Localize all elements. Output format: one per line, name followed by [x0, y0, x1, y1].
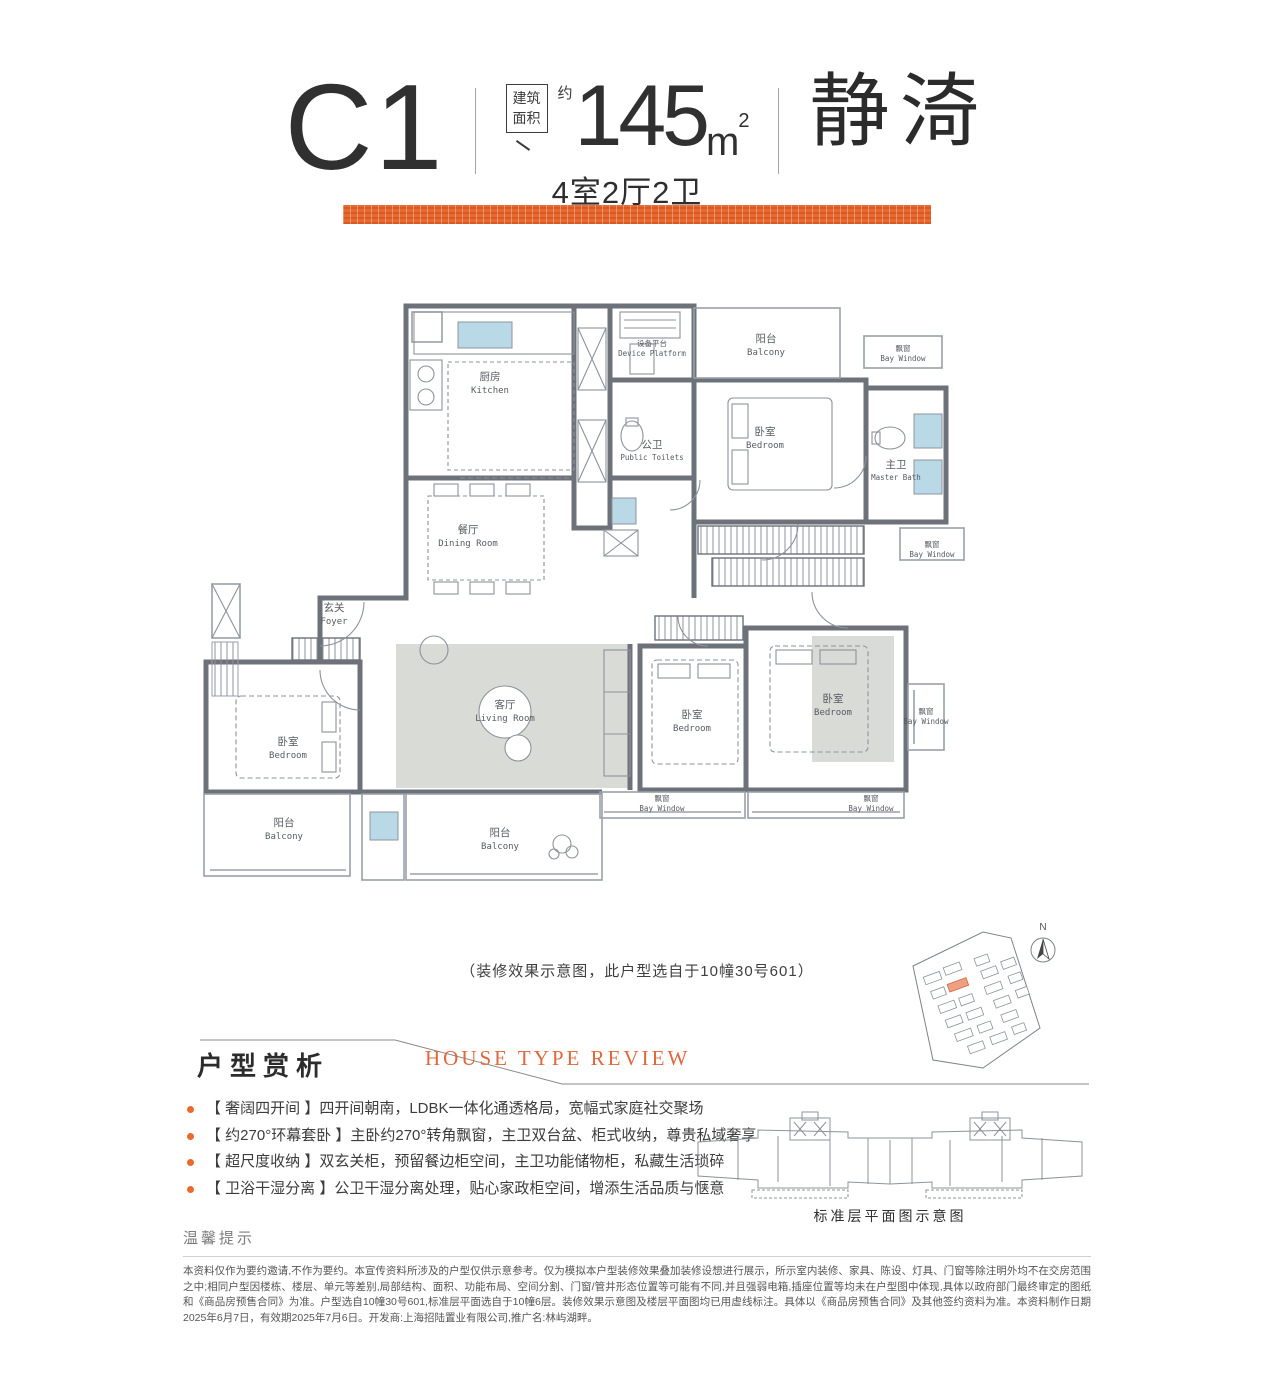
room-label: Bedroom — [814, 708, 852, 718]
area-approx: 约 — [558, 82, 573, 103]
room-label: Bay Window — [639, 804, 685, 813]
area-label-box: 建筑 面积 — [506, 84, 548, 133]
room-label: 飘窗 — [925, 539, 940, 549]
room-label: Bay Window — [880, 354, 926, 363]
balcony-rails-layer — [204, 308, 964, 880]
room-label: Device Platform — [618, 349, 686, 358]
room-label: Bay Window — [848, 804, 894, 813]
room-label: 阳台 — [274, 816, 295, 829]
room-label: 客厅 — [495, 698, 516, 711]
north-compass-icon: N — [1031, 922, 1055, 962]
room-label: 玄关 — [324, 601, 345, 614]
header-divider-left — [475, 88, 476, 174]
room-label: 卧室 — [278, 735, 299, 748]
room-label: Foyer — [320, 617, 348, 627]
area-unit: m2 — [706, 110, 748, 165]
room-label: 餐厅 — [458, 523, 479, 536]
floor-plan-drawing: 厨房 Kitchen 设备平台 Device Platform 公卫 Publi… — [200, 298, 980, 898]
room-label: 厨房 — [480, 370, 501, 383]
room-label: Bedroom — [673, 724, 711, 734]
area-label-line2: 面积 — [507, 108, 547, 128]
room-label: Balcony — [265, 832, 304, 842]
brochure-page: C1 建筑 面积 约 145 m2 4室2厅2卫 静渏 — [0, 0, 1274, 1400]
room-label: Public Toilets — [620, 453, 683, 462]
room-label: 卧室 — [823, 692, 844, 705]
header-divider-right — [778, 88, 779, 174]
room-label: Balcony — [747, 348, 786, 358]
room-label: 主卫 — [886, 459, 907, 471]
review-title-cn: 户型赏析 — [197, 1046, 329, 1083]
room-label: Living Room — [475, 714, 535, 724]
room-label: 飘窗 — [896, 343, 911, 353]
room-label: Master Bath — [871, 473, 921, 482]
room-label: 飘窗 — [655, 793, 670, 803]
room-label: Balcony — [481, 842, 520, 852]
notice-title: 温馨提示 — [183, 1227, 255, 1248]
header: C1 建筑 面积 约 145 m2 4室2厅2卫 静渏 — [0, 66, 1274, 212]
room-label: 设备平台 — [637, 338, 667, 348]
review-title-en: HOUSE TYPE REVIEW — [425, 1046, 690, 1071]
notice-divider — [183, 1256, 1091, 1257]
room-label: Bay Window — [909, 550, 955, 559]
north-label: N — [1039, 922, 1046, 933]
orange-pattern-strip — [343, 205, 931, 224]
area-label-line1: 建筑 — [507, 88, 547, 108]
standard-floor-drawing — [690, 1110, 1090, 1206]
area-row: 建筑 面积 约 145 m2 — [506, 76, 749, 165]
area-superscript: 2 — [738, 110, 748, 132]
room-label: 公卫 — [642, 439, 663, 451]
area-group: 建筑 面积 约 145 m2 4室2厅2卫 — [506, 76, 749, 212]
room-label: 飘窗 — [864, 793, 879, 803]
room-label: Kitchen — [471, 386, 509, 396]
room-label: 飘窗 — [919, 706, 934, 716]
room-label: 卧室 — [755, 425, 776, 438]
room-label: 阳台 — [756, 332, 777, 345]
unit-name: 静渏 — [809, 66, 989, 158]
area-value: 145 — [575, 76, 707, 158]
unit-code: C1 — [285, 66, 445, 188]
room-label: Bay Window — [903, 717, 949, 726]
room-label: Bedroom — [269, 751, 307, 761]
room-label: 卧室 — [682, 708, 703, 721]
room-label: Dining Room — [438, 539, 498, 549]
standard-floor-caption: 标准层平面图示意图 — [690, 1206, 1090, 1226]
room-label: 阳台 — [490, 826, 511, 839]
room-label: Bedroom — [746, 441, 784, 451]
disclaimer-text: 本资料仅作为要约邀请,不作为要约。本宣传资料所涉及的户型仅供示意参考。仅为模拟本… — [183, 1264, 1091, 1326]
